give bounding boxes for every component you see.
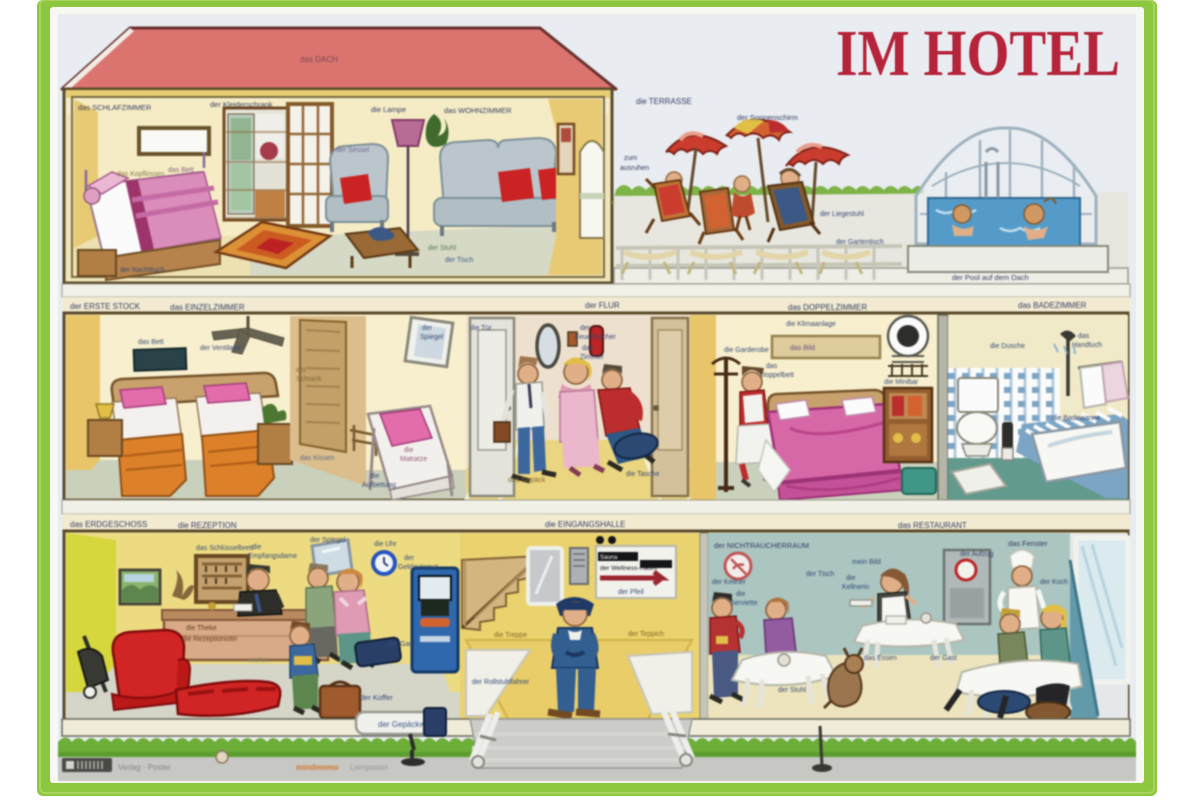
svg-text:der Aufzug: der Aufzug — [960, 551, 994, 558]
svg-text:der: der — [580, 325, 591, 332]
svg-text:Schrank: Schrank — [296, 376, 322, 383]
svg-text:der: der — [296, 367, 307, 374]
svg-text:der Kellner: der Kellner — [712, 579, 747, 586]
svg-text:der Spiegel: der Spiegel — [310, 537, 346, 544]
svg-text:die Minibar: die Minibar — [884, 379, 919, 386]
svg-text:das DACH: das DACH — [300, 55, 338, 64]
svg-text:der Stuhl: der Stuhl — [778, 687, 806, 694]
svg-text:die Theke: die Theke — [186, 625, 217, 632]
svg-text:das: das — [1078, 333, 1090, 340]
svg-text:das DOPPELZIMMER: das DOPPELZIMMER — [788, 303, 867, 312]
svg-text:der: der — [404, 555, 415, 562]
svg-text:der: der — [422, 325, 433, 332]
svg-text:IM HOTEL: IM HOTEL — [836, 17, 1120, 90]
svg-text:Aufbettung: Aufbettung — [362, 482, 396, 489]
svg-text:die Treppe: die Treppe — [494, 632, 527, 639]
svg-text:Matratze: Matratze — [400, 456, 427, 463]
svg-text:das EINZELZIMMER: das EINZELZIMMER — [170, 303, 245, 312]
svg-text:Lernposter: Lernposter — [350, 763, 389, 772]
svg-text:der Wellness-Raum: der Wellness-Raum — [600, 565, 657, 572]
svg-text:die Tür: die Tür — [470, 325, 492, 332]
svg-text:das: das — [582, 345, 594, 352]
svg-text:das SCHLAFZIMMER: das SCHLAFZIMMER — [78, 103, 152, 112]
svg-text:Handtuch: Handtuch — [1072, 342, 1102, 349]
svg-text:Sauna: Sauna — [600, 555, 618, 561]
svg-text:die: die — [736, 591, 745, 598]
svg-text:Zimmer: Zimmer — [580, 354, 604, 361]
svg-text:die Garderobe: die Garderobe — [724, 347, 769, 354]
svg-text:der Ventilator: der Ventilator — [200, 345, 242, 352]
svg-text:das RESTAURANT: das RESTAURANT — [898, 521, 967, 530]
svg-text:der Nachttisch: der Nachttisch — [120, 267, 165, 274]
svg-text:die REZEPTION: die REZEPTION — [178, 521, 237, 530]
svg-text:der Pfeil: der Pfeil — [618, 589, 644, 596]
svg-text:Empfangsdame: Empfangsdame — [248, 553, 297, 560]
svg-text:das Essen: das Essen — [864, 655, 897, 662]
svg-text:das: das — [766, 363, 778, 370]
svg-text:die: die — [370, 473, 379, 480]
svg-text:die Dusche: die Dusche — [990, 343, 1025, 350]
svg-text:die Uhr: die Uhr — [374, 541, 397, 548]
svg-text:das Bild: das Bild — [790, 345, 815, 352]
svg-text:der Liegestuhl: der Liegestuhl — [820, 211, 864, 218]
svg-text:die: die — [846, 575, 855, 582]
svg-text:Spiegel: Spiegel — [420, 334, 444, 341]
svg-text:die Badewanne: die Badewanne — [1052, 415, 1100, 422]
svg-text:der ERSTE STOCK: der ERSTE STOCK — [70, 302, 141, 311]
svg-text:der Pool auf dem Dach: der Pool auf dem Dach — [952, 273, 1029, 282]
svg-text:der Teppich: der Teppich — [628, 631, 664, 638]
svg-text:die: die — [252, 544, 261, 551]
svg-text:das Fenster: das Fenster — [1008, 539, 1048, 548]
svg-text:der Gartentisch: der Gartentisch — [836, 239, 884, 246]
svg-text:das Schlüsselbrett: das Schlüsselbrett — [196, 545, 253, 552]
svg-text:das Bett: das Bett — [138, 339, 164, 346]
svg-text:der Tisch: der Tisch — [445, 257, 474, 264]
svg-text:der Tisch: der Tisch — [806, 571, 835, 578]
svg-text:die Rezeptionistin: die Rezeptionistin — [182, 636, 237, 643]
svg-text:der Koffer: der Koffer — [360, 693, 393, 702]
svg-text:die Tasche: die Tasche — [626, 471, 659, 478]
svg-text:Geldautomat: Geldautomat — [398, 564, 438, 571]
svg-text:der Stuhl: der Stuhl — [428, 245, 456, 252]
svg-text:Doppelbett: Doppelbett — [760, 372, 794, 379]
svg-text:Feuerlöscher: Feuerlöscher — [575, 334, 617, 341]
svg-text:der Rollstuhlfahrer: der Rollstuhlfahrer — [472, 679, 530, 686]
svg-text:der Koch: der Koch — [1040, 579, 1068, 586]
svg-text:zum: zum — [624, 155, 637, 162]
svg-text:das Bett: das Bett — [168, 167, 194, 174]
svg-text:warten: warten — [247, 657, 269, 664]
svg-text:die: die — [404, 447, 413, 454]
svg-text:der FLUR: der FLUR — [585, 301, 620, 310]
svg-text:mein Bild: mein Bild — [852, 559, 881, 566]
svg-text:das ERDGESCHOSS: das ERDGESCHOSS — [70, 520, 147, 529]
svg-text:das BADEZIMMER: das BADEZIMMER — [1018, 301, 1087, 310]
svg-text:der Sessel: der Sessel — [336, 147, 370, 154]
svg-text:Kellnerin: Kellnerin — [842, 584, 869, 591]
svg-text:ausruhen: ausruhen — [620, 165, 649, 172]
svg-text:die EINGANGSHALLE: die EINGANGSHALLE — [545, 520, 625, 529]
svg-text:das Gepäck: das Gepäck — [508, 477, 546, 484]
svg-text:das Kissen: das Kissen — [300, 455, 334, 462]
svg-text:Serviette: Serviette — [730, 600, 758, 607]
svg-text:das WOHNZIMMER: das WOHNZIMMER — [444, 106, 512, 115]
svg-text:die TERRASSE: die TERRASSE — [636, 97, 692, 106]
svg-text:die Klimaanlage: die Klimaanlage — [786, 321, 836, 328]
svg-text:mindmemo: mindmemo — [296, 763, 339, 772]
svg-text:der Gast: der Gast — [930, 655, 957, 662]
svg-text:der Sonnenschirm: der Sonnenschirm — [737, 113, 798, 122]
svg-text:der Gast: der Gast — [388, 641, 415, 648]
svg-text:das Kopfkissen: das Kopfkissen — [117, 171, 165, 178]
svg-text:der Kleiderschrank: der Kleiderschrank — [210, 100, 273, 109]
svg-text:die Lampe: die Lampe — [371, 105, 406, 114]
svg-text:Verlag · Poster: Verlag · Poster — [118, 763, 171, 772]
svg-text:der NICHTRAUCHERRAUM: der NICHTRAUCHERRAUM — [714, 541, 809, 550]
